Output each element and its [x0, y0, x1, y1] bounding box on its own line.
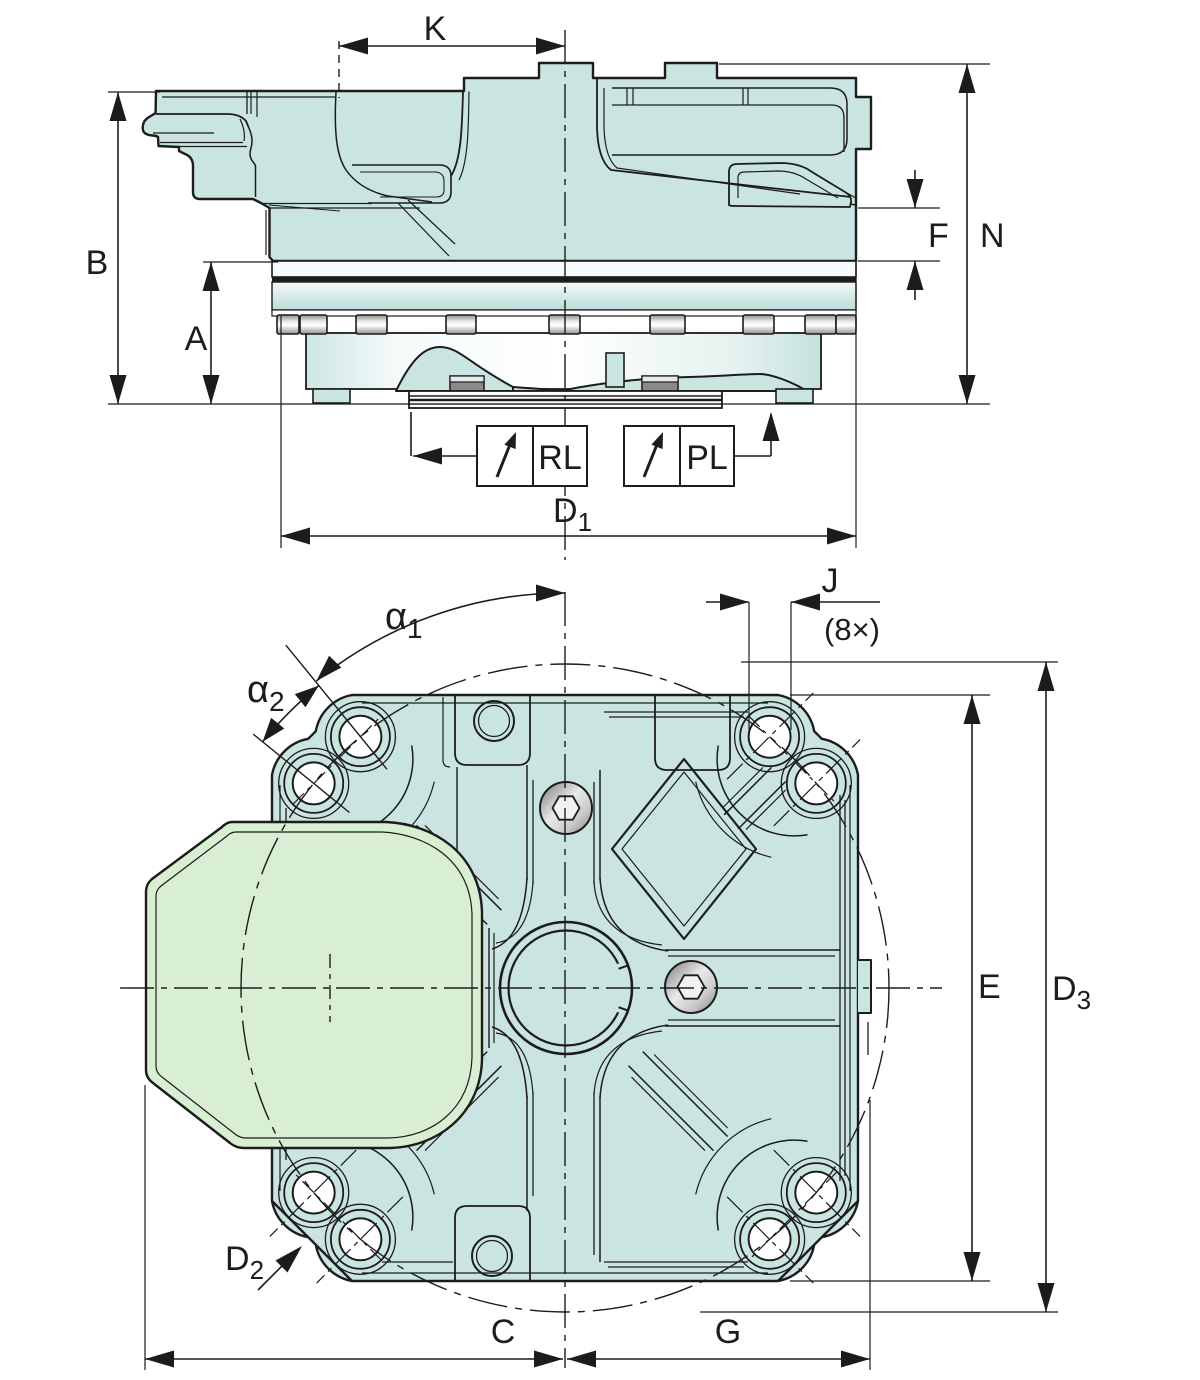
- svg-text:RL: RL: [538, 439, 581, 477]
- svg-text:E: E: [978, 968, 1001, 1006]
- svg-text:F: F: [928, 217, 949, 255]
- svg-text:A: A: [185, 320, 208, 358]
- svg-text:B: B: [86, 244, 109, 282]
- svg-text:D2: D2: [225, 1240, 264, 1285]
- svg-text:PL: PL: [686, 439, 728, 477]
- svg-text:G: G: [715, 1313, 741, 1351]
- svg-text:α1: α1: [385, 596, 423, 644]
- svg-text:D1: D1: [553, 492, 592, 537]
- svg-text:J: J: [822, 562, 839, 600]
- svg-text:K: K: [424, 10, 447, 48]
- svg-text:C: C: [491, 1313, 516, 1351]
- svg-text:α2: α2: [247, 669, 285, 717]
- svg-text:N: N: [980, 217, 1005, 255]
- svg-text:D3: D3: [1052, 970, 1091, 1015]
- svg-text:(8×): (8×): [824, 612, 880, 647]
